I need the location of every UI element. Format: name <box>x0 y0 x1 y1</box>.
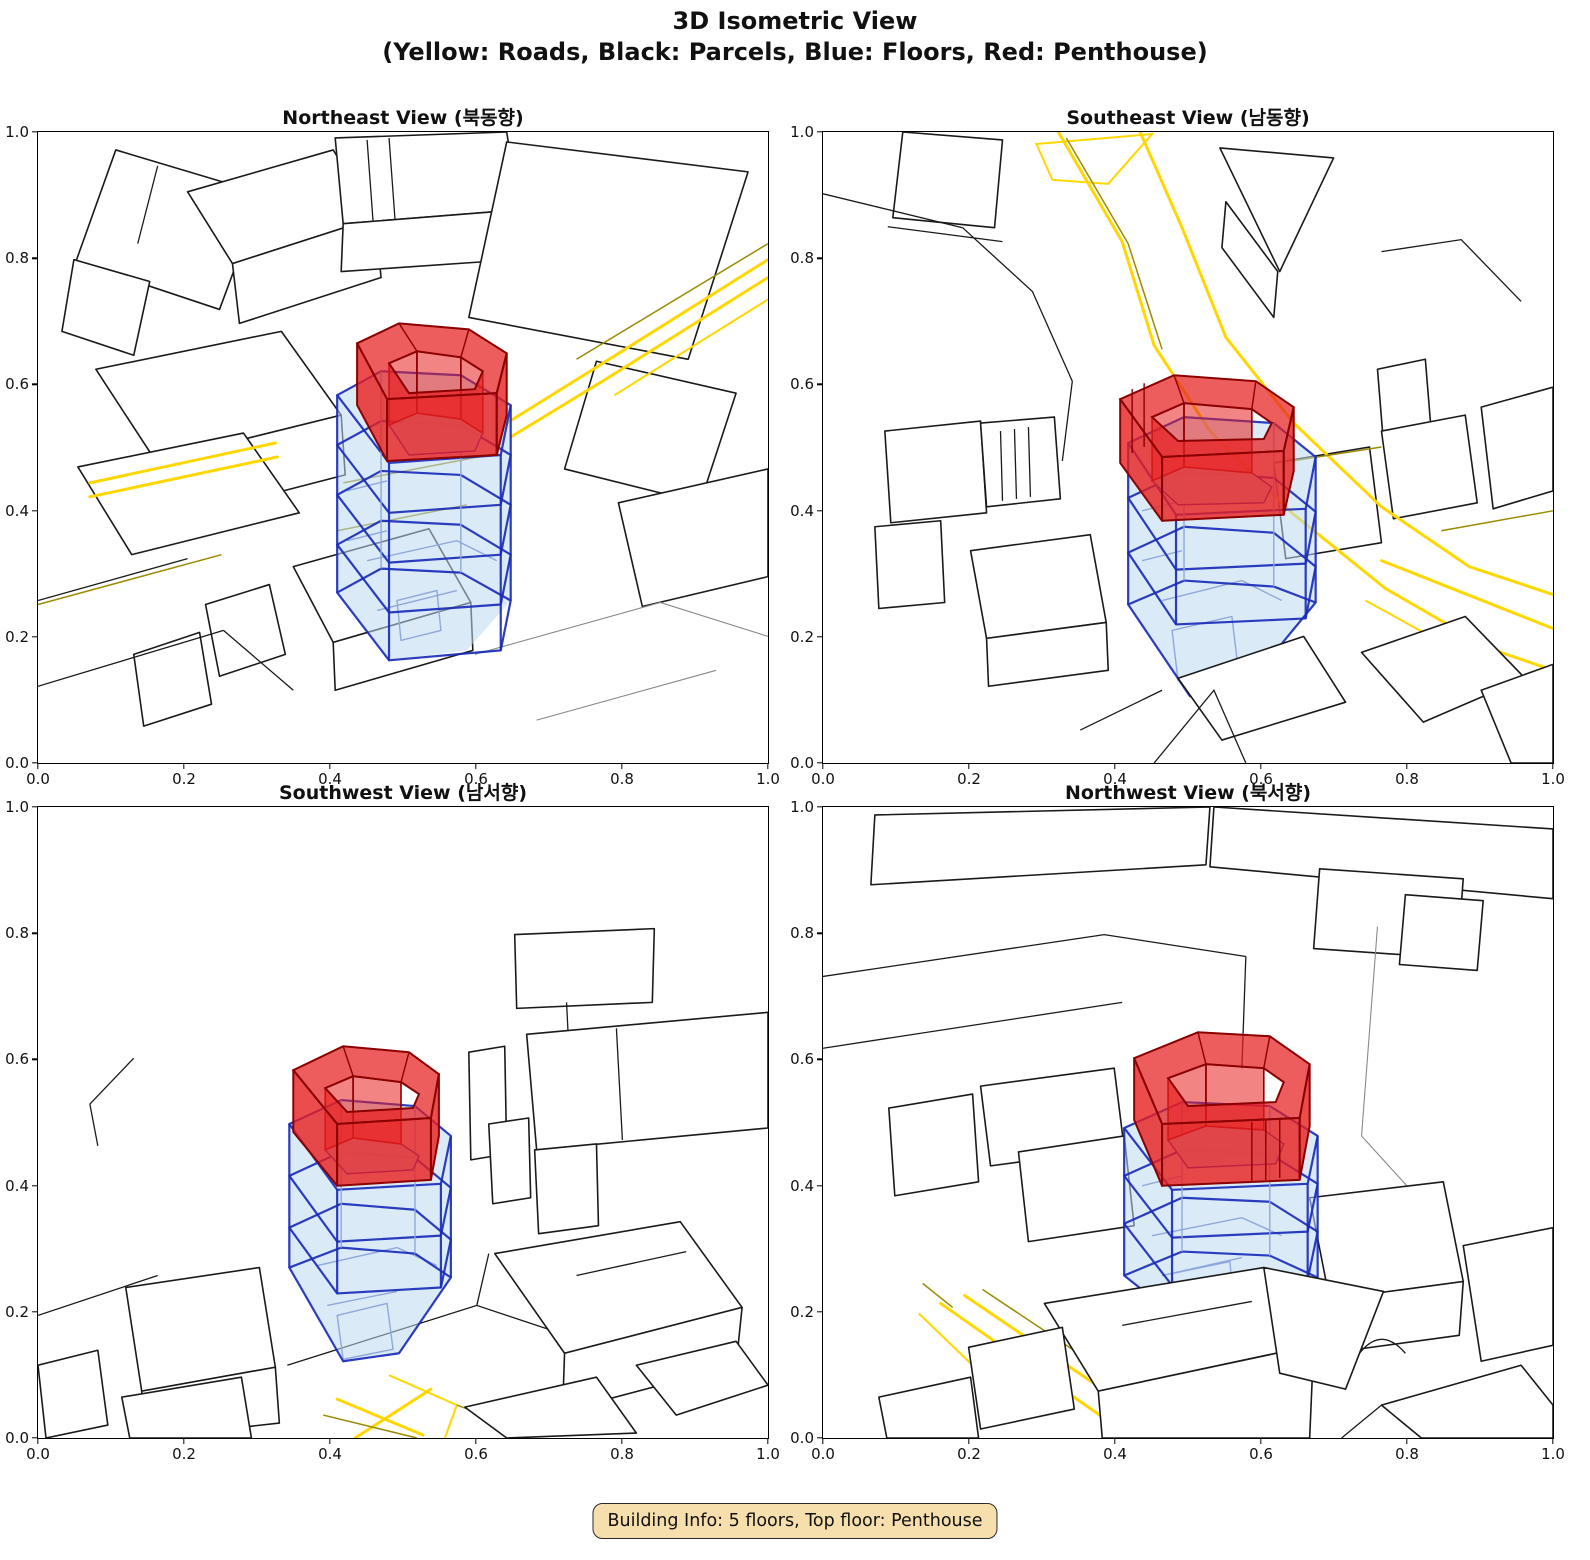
subplot-title-northeast: Northeast View (북동향) <box>38 103 768 130</box>
y-tick-mark <box>32 510 38 511</box>
figure-title-line2: (Yellow: Roads, Black: Parcels, Blue: Fl… <box>0 37 1590 68</box>
foreground-parcels <box>465 1222 768 1438</box>
y-tick-mark <box>817 1437 823 1438</box>
y-tick-mark <box>817 932 823 933</box>
y-tick-label: 0.4 <box>5 502 29 520</box>
penthouse-layer <box>357 323 507 461</box>
y-tick-label: 1.0 <box>790 123 814 141</box>
x-tick-mark <box>183 1438 184 1444</box>
x-tick-mark <box>968 763 969 769</box>
y-tick-mark <box>32 636 38 637</box>
y-tick-label: 1.0 <box>5 123 29 141</box>
y-tick-mark <box>817 257 823 258</box>
y-tick-label: 0.8 <box>5 249 29 267</box>
scene-northeast <box>38 132 768 763</box>
y-tick-label: 0.4 <box>790 502 814 520</box>
y-tick-label: 0.0 <box>790 754 814 772</box>
x-tick-mark <box>767 763 768 769</box>
subplot-northeast: Northeast View (북동향) <box>37 131 769 764</box>
y-tick-mark <box>817 510 823 511</box>
x-tick-mark <box>1552 763 1553 769</box>
x-tick-label: 1.0 <box>1541 1445 1565 1463</box>
y-tick-label: 0.4 <box>790 1177 814 1195</box>
subplot-title-southeast: Southeast View (남동향) <box>823 103 1553 130</box>
x-tick-mark <box>37 1438 38 1444</box>
subplot-southeast: Southeast View (남동향) <box>822 131 1554 764</box>
y-tick-label: 0.2 <box>790 628 814 646</box>
x-tick-mark <box>621 1438 622 1444</box>
x-tick-label: 1.0 <box>756 1445 780 1463</box>
x-tick-mark <box>1406 763 1407 769</box>
x-tick-mark <box>329 1438 330 1444</box>
x-tick-label: 0.0 <box>811 1445 835 1463</box>
y-tick-mark <box>32 932 38 933</box>
x-tick-label: 0.0 <box>26 1445 50 1463</box>
subplot-title-northwest: Northwest View (북서향) <box>823 778 1553 805</box>
x-tick-mark <box>1114 763 1115 769</box>
y-tick-label: 0.0 <box>5 1429 29 1447</box>
subplot-northwest: Northwest View (북서향) <box>822 806 1554 1439</box>
y-tick-mark <box>32 257 38 258</box>
scene-southeast <box>823 132 1553 763</box>
x-tick-mark <box>1260 763 1261 769</box>
y-tick-mark <box>817 806 823 807</box>
x-tick-mark <box>822 1438 823 1444</box>
figure-canvas: { "figure": { "title_line1": "3D Isometr… <box>0 0 1590 1560</box>
target-building-southwest <box>289 1046 451 1361</box>
y-tick-label: 0.8 <box>5 924 29 942</box>
y-tick-label: 0.4 <box>5 1177 29 1195</box>
y-tick-mark <box>817 636 823 637</box>
x-tick-label: 0.2 <box>172 1445 196 1463</box>
y-tick-mark <box>817 1311 823 1312</box>
x-tick-label: 0.6 <box>464 1445 488 1463</box>
x-tick-mark <box>1406 1438 1407 1444</box>
penthouse-layer <box>1134 1032 1310 1186</box>
y-tick-mark <box>817 1185 823 1186</box>
x-tick-mark <box>475 763 476 769</box>
x-tick-mark <box>621 763 622 769</box>
y-tick-mark <box>32 806 38 807</box>
y-tick-mark <box>817 1059 823 1060</box>
y-tick-label: 0.8 <box>790 924 814 942</box>
y-tick-mark <box>32 384 38 385</box>
y-tick-mark <box>32 1059 38 1060</box>
y-tick-label: 1.0 <box>5 798 29 816</box>
y-tick-label: 0.6 <box>790 375 814 393</box>
y-tick-label: 0.6 <box>5 1050 29 1068</box>
x-tick-mark <box>1552 1438 1553 1444</box>
y-tick-mark <box>32 762 38 763</box>
y-tick-mark <box>817 384 823 385</box>
y-tick-label: 0.6 <box>790 1050 814 1068</box>
y-tick-label: 0.0 <box>790 1429 814 1447</box>
x-tick-mark <box>822 763 823 769</box>
y-tick-label: 0.2 <box>5 628 29 646</box>
y-tick-label: 0.0 <box>5 754 29 772</box>
scene-southwest <box>38 807 768 1438</box>
x-tick-mark <box>1114 1438 1115 1444</box>
figure-title: 3D Isometric View (Yellow: Roads, Black:… <box>0 6 1590 68</box>
building-info-badge: Building Info: 5 floors, Top floor: Pent… <box>592 1503 997 1539</box>
x-tick-mark <box>329 763 330 769</box>
y-tick-label: 0.8 <box>790 249 814 267</box>
y-tick-mark <box>817 131 823 132</box>
y-tick-mark <box>32 1185 38 1186</box>
subplot-title-southwest: Southwest View (남서향) <box>38 778 768 805</box>
x-tick-label: 0.8 <box>1395 1445 1419 1463</box>
x-tick-mark <box>767 1438 768 1444</box>
x-tick-mark <box>1260 1438 1261 1444</box>
y-tick-label: 0.6 <box>5 375 29 393</box>
x-tick-label: 0.2 <box>957 1445 981 1463</box>
x-tick-label: 0.4 <box>318 1445 342 1463</box>
y-tick-mark <box>817 762 823 763</box>
x-tick-label: 0.6 <box>1249 1445 1273 1463</box>
y-tick-label: 0.2 <box>5 1303 29 1321</box>
x-tick-mark <box>968 1438 969 1444</box>
penthouse-layer <box>1120 375 1294 521</box>
scene-northwest <box>823 807 1553 1438</box>
x-tick-label: 0.8 <box>610 1445 634 1463</box>
x-tick-mark <box>475 1438 476 1444</box>
y-tick-mark <box>32 1437 38 1438</box>
x-tick-label: 0.4 <box>1103 1445 1127 1463</box>
y-tick-label: 1.0 <box>790 798 814 816</box>
x-tick-mark <box>37 763 38 769</box>
y-tick-mark <box>32 1311 38 1312</box>
subplot-southwest: Southwest View (남서향) <box>37 806 769 1439</box>
target-building-northeast <box>337 323 511 660</box>
y-tick-mark <box>32 131 38 132</box>
x-tick-mark <box>183 763 184 769</box>
figure-title-line1: 3D Isometric View <box>0 6 1590 37</box>
y-tick-label: 0.2 <box>790 1303 814 1321</box>
